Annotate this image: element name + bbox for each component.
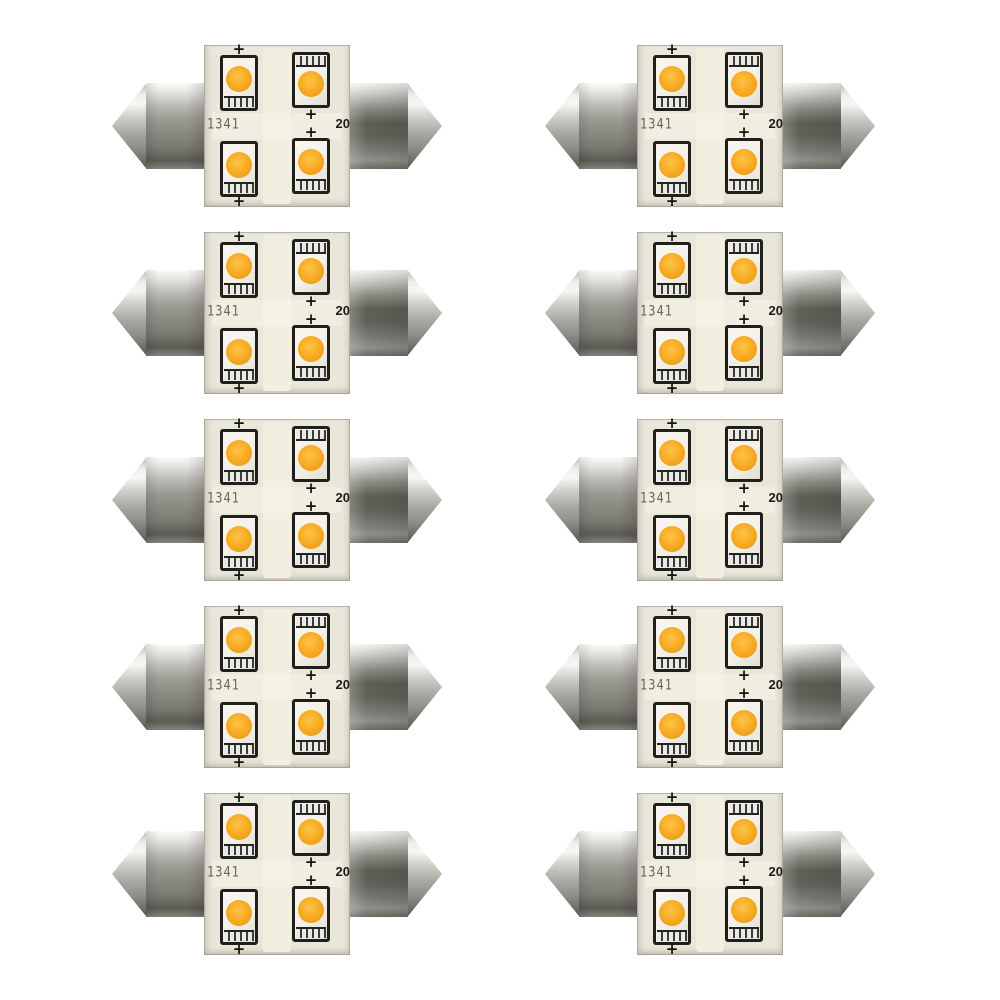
led-circuit-board: + + + +: [204, 45, 350, 207]
led-amber-die: [659, 627, 685, 653]
pcb-label: 20: [769, 864, 783, 879]
pcb-label: 20: [336, 864, 350, 879]
led-solder-contact: [224, 470, 254, 481]
led-chip-bottom-left: +: [220, 328, 258, 384]
led-solder-contact: [657, 96, 687, 107]
cap-cylinder-left: [579, 644, 637, 730]
polarity-plus-mark: +: [292, 668, 330, 683]
cap-cylinder-right: [350, 644, 408, 730]
cap-cone-right: [408, 83, 442, 169]
polarity-plus-mark: +: [292, 107, 330, 122]
pcb-marking: 1341: [640, 490, 673, 506]
led-chip-bottom-right: +: [725, 138, 763, 194]
pcb-marking: 1341: [640, 677, 673, 693]
metal-end-cap-right: [350, 457, 442, 543]
led-solder-contact: [296, 617, 326, 628]
polarity-plus-mark: +: [725, 294, 763, 309]
led-chip-bottom-left: +: [653, 141, 691, 197]
metal-end-cap-right: [783, 270, 875, 356]
led-chip-bottom-left: +: [653, 328, 691, 384]
cap-cone-left: [545, 270, 579, 356]
festoon-bulb: + + + +: [112, 232, 442, 394]
cap-cone-right: [841, 644, 875, 730]
led-solder-contact: [729, 617, 759, 628]
led-package: [653, 242, 691, 298]
pcb-marking: 1341: [640, 116, 673, 132]
pcb-label: 20: [769, 303, 783, 318]
led-amber-die: [731, 149, 757, 175]
led-chip-bottom-right: +: [725, 699, 763, 755]
led-package: [220, 328, 258, 384]
metal-end-cap-left: [112, 457, 204, 543]
polarity-plus-mark: +: [220, 568, 258, 583]
led-solder-contact: [729, 553, 759, 564]
pcb-marking: 1341: [207, 677, 240, 693]
pcb-marking: 1341: [640, 864, 673, 880]
led-amber-die: [731, 258, 757, 284]
pcb-marking: 1341: [207, 864, 240, 880]
led-chip-top-left: +: [653, 242, 691, 298]
led-amber-die: [731, 819, 757, 845]
led-package: [292, 886, 330, 942]
led-solder-contact: [224, 844, 254, 855]
cap-cone-left: [545, 83, 579, 169]
led-amber-die: [226, 339, 252, 365]
led-chip-bottom-right: +: [725, 325, 763, 381]
led-package: [220, 515, 258, 571]
led-chip-bottom-left: +: [653, 702, 691, 758]
metal-end-cap-left: [545, 270, 637, 356]
led-amber-die: [731, 710, 757, 736]
led-solder-contact: [296, 553, 326, 564]
led-amber-die: [731, 336, 757, 362]
led-solder-contact: [296, 179, 326, 190]
led-chip-top-left: +: [220, 55, 258, 111]
led-chip-top-left: +: [220, 242, 258, 298]
led-solder-contact: [296, 366, 326, 377]
led-package: [292, 52, 330, 108]
cap-cone-right: [841, 457, 875, 543]
led-amber-die: [226, 900, 252, 926]
led-solder-contact: [296, 804, 326, 815]
cap-cone-right: [408, 644, 442, 730]
metal-end-cap-left: [545, 831, 637, 917]
led-circuit-board: + + + +: [637, 45, 783, 207]
pcb-marking: 1341: [207, 303, 240, 319]
cap-cylinder-right: [350, 457, 408, 543]
led-solder-contact: [657, 283, 687, 294]
led-amber-die: [731, 445, 757, 471]
metal-end-cap-right: [350, 83, 442, 169]
led-package: [725, 699, 763, 755]
metal-end-cap-right: [783, 644, 875, 730]
cap-cone-left: [112, 83, 146, 169]
led-package: [220, 803, 258, 859]
cap-cylinder-left: [579, 457, 637, 543]
led-amber-die: [659, 814, 685, 840]
metal-end-cap-right: [783, 831, 875, 917]
festoon-bulb: + + + +: [112, 793, 442, 955]
cap-cylinder-left: [146, 644, 204, 730]
led-amber-die: [226, 440, 252, 466]
cap-cylinder-right: [783, 457, 841, 543]
led-amber-die: [659, 526, 685, 552]
pcb-marking: 1341: [207, 490, 240, 506]
led-solder-contact: [296, 430, 326, 441]
polarity-plus-mark: +: [220, 194, 258, 209]
pcb-label: 20: [336, 677, 350, 692]
led-amber-die: [226, 526, 252, 552]
led-amber-die: [298, 149, 324, 175]
cap-cone-right: [841, 83, 875, 169]
led-package: [653, 515, 691, 571]
pcb-label: 20: [336, 116, 350, 131]
led-chip-bottom-right: +: [725, 886, 763, 942]
polarity-plus-mark: +: [653, 194, 691, 209]
led-amber-die: [226, 66, 252, 92]
led-package: [292, 138, 330, 194]
led-amber-die: [298, 819, 324, 845]
polarity-plus-mark: +: [725, 107, 763, 122]
led-amber-die: [731, 897, 757, 923]
led-package: [725, 512, 763, 568]
polarity-plus-mark: +: [725, 668, 763, 683]
led-chip-bottom-right: +: [292, 138, 330, 194]
led-amber-die: [226, 713, 252, 739]
led-solder-contact: [729, 56, 759, 67]
cap-cone-right: [408, 831, 442, 917]
led-circuit-board: + + + +: [204, 606, 350, 768]
led-chip-top-right: +: [725, 239, 763, 295]
led-chip-bottom-right: +: [292, 699, 330, 755]
led-chip-bottom-right: +: [725, 512, 763, 568]
metal-end-cap-right: [350, 831, 442, 917]
cap-cylinder-left: [146, 83, 204, 169]
led-package: [220, 616, 258, 672]
led-chip-bottom-left: +: [220, 702, 258, 758]
led-solder-contact: [729, 243, 759, 254]
metal-end-cap-left: [112, 270, 204, 356]
led-circuit-board: + + + +: [204, 793, 350, 955]
metal-end-cap-left: [545, 457, 637, 543]
led-package: [292, 239, 330, 295]
led-package: [653, 889, 691, 945]
metal-end-cap-left: [112, 83, 204, 169]
led-amber-die: [659, 713, 685, 739]
bulb-grid: + + + +: [112, 45, 875, 955]
polarity-plus-mark: +: [653, 755, 691, 770]
cap-cylinder-right: [783, 83, 841, 169]
led-package: [725, 886, 763, 942]
festoon-bulb: + + + +: [112, 419, 442, 581]
polarity-plus-mark: +: [220, 942, 258, 957]
led-package: [725, 426, 763, 482]
led-package: [292, 699, 330, 755]
metal-end-cap-left: [112, 644, 204, 730]
cap-cone-left: [112, 270, 146, 356]
led-chip-bottom-left: +: [653, 515, 691, 571]
led-amber-die: [298, 258, 324, 284]
cap-cylinder-right: [350, 83, 408, 169]
led-chip-bottom-left: +: [220, 515, 258, 571]
led-solder-contact: [729, 366, 759, 377]
led-chip-bottom-left: +: [220, 141, 258, 197]
led-package: [220, 429, 258, 485]
polarity-plus-mark: +: [725, 855, 763, 870]
cap-cylinder-left: [146, 831, 204, 917]
cap-cylinder-left: [579, 831, 637, 917]
cap-cylinder-left: [146, 270, 204, 356]
led-chip-top-right: +: [292, 800, 330, 856]
cap-cylinder-right: [350, 270, 408, 356]
cap-cylinder-left: [146, 457, 204, 543]
led-chip-bottom-right: +: [292, 325, 330, 381]
festoon-bulb: + + + +: [545, 45, 875, 207]
led-circuit-board: + + + +: [637, 606, 783, 768]
polarity-plus-mark: +: [220, 755, 258, 770]
led-chip-top-right: +: [292, 239, 330, 295]
cap-cone-right: [841, 270, 875, 356]
pcb-marking: 1341: [207, 116, 240, 132]
led-circuit-board: + + + +: [637, 793, 783, 955]
led-solder-contact: [729, 804, 759, 815]
led-package: [725, 613, 763, 669]
led-amber-die: [298, 897, 324, 923]
metal-end-cap-left: [112, 831, 204, 917]
led-solder-contact: [224, 657, 254, 668]
led-solder-contact: [729, 179, 759, 190]
led-solder-contact: [296, 56, 326, 67]
metal-end-cap-right: [783, 457, 875, 543]
cap-cone-left: [112, 831, 146, 917]
led-chip-top-right: +: [725, 613, 763, 669]
cap-cone-left: [112, 457, 146, 543]
led-solder-contact: [729, 927, 759, 938]
led-package: [220, 889, 258, 945]
led-amber-die: [226, 253, 252, 279]
led-package: [292, 512, 330, 568]
led-circuit-board: + + + +: [637, 419, 783, 581]
pcb-label: 20: [769, 677, 783, 692]
polarity-plus-mark: +: [292, 294, 330, 309]
polarity-plus-mark: +: [292, 855, 330, 870]
festoon-bulb: + + + +: [545, 793, 875, 955]
led-solder-contact: [729, 740, 759, 751]
led-chip-top-right: +: [292, 426, 330, 482]
led-package: [653, 616, 691, 672]
led-package: [725, 325, 763, 381]
led-chip-top-left: +: [653, 616, 691, 672]
metal-end-cap-left: [545, 83, 637, 169]
pcb-label: 20: [336, 490, 350, 505]
led-amber-die: [226, 152, 252, 178]
cap-cylinder-right: [350, 831, 408, 917]
festoon-bulb: + + + +: [112, 606, 442, 768]
led-package: [653, 429, 691, 485]
led-chip-bottom-right: +: [292, 886, 330, 942]
led-package: [292, 800, 330, 856]
metal-end-cap-right: [350, 270, 442, 356]
metal-end-cap-right: [783, 83, 875, 169]
led-package: [725, 52, 763, 108]
polarity-plus-mark: +: [725, 481, 763, 496]
led-circuit-board: + + + +: [204, 232, 350, 394]
led-amber-die: [731, 523, 757, 549]
led-circuit-board: + + + +: [637, 232, 783, 394]
polarity-plus-mark: +: [653, 568, 691, 583]
cap-cone-left: [545, 457, 579, 543]
led-solder-contact: [224, 96, 254, 107]
led-package: [292, 426, 330, 482]
led-chip-top-left: +: [220, 616, 258, 672]
cap-cone-left: [545, 644, 579, 730]
led-amber-die: [298, 336, 324, 362]
festoon-bulb: + + + +: [545, 606, 875, 768]
led-chip-top-left: +: [653, 429, 691, 485]
led-package: [725, 138, 763, 194]
led-chip-top-right: +: [725, 52, 763, 108]
festoon-bulb: + + + +: [112, 45, 442, 207]
led-chip-top-left: +: [653, 803, 691, 859]
led-amber-die: [731, 632, 757, 658]
led-amber-die: [731, 71, 757, 97]
pcb-label: 20: [336, 303, 350, 318]
led-amber-die: [226, 627, 252, 653]
led-chip-top-right: +: [292, 52, 330, 108]
pcb-marking: 1341: [640, 303, 673, 319]
led-solder-contact: [296, 243, 326, 254]
led-solder-contact: [296, 927, 326, 938]
led-package: [220, 55, 258, 111]
led-chip-top-right: +: [725, 800, 763, 856]
led-chip-top-left: +: [653, 55, 691, 111]
led-chip-top-left: +: [220, 803, 258, 859]
led-amber-die: [298, 445, 324, 471]
led-package: [653, 141, 691, 197]
cap-cylinder-left: [579, 83, 637, 169]
led-amber-die: [298, 523, 324, 549]
led-solder-contact: [296, 740, 326, 751]
led-amber-die: [298, 710, 324, 736]
cap-cone-left: [545, 831, 579, 917]
led-amber-die: [298, 632, 324, 658]
led-amber-die: [659, 253, 685, 279]
cap-cone-right: [408, 270, 442, 356]
cap-cone-left: [112, 644, 146, 730]
led-chip-bottom-left: +: [653, 889, 691, 945]
led-package: [653, 55, 691, 111]
led-amber-die: [298, 71, 324, 97]
led-amber-die: [659, 440, 685, 466]
led-solder-contact: [729, 430, 759, 441]
led-amber-die: [226, 814, 252, 840]
metal-end-cap-left: [545, 644, 637, 730]
led-package: [725, 800, 763, 856]
led-package: [725, 239, 763, 295]
led-circuit-board: + + + +: [204, 419, 350, 581]
pcb-label: 20: [769, 490, 783, 505]
led-chip-top-right: +: [725, 426, 763, 482]
led-solder-contact: [657, 470, 687, 481]
led-solder-contact: [224, 283, 254, 294]
led-package: [292, 325, 330, 381]
festoon-bulb: + + + +: [545, 419, 875, 581]
led-amber-die: [659, 66, 685, 92]
led-chip-bottom-right: +: [292, 512, 330, 568]
polarity-plus-mark: +: [220, 381, 258, 396]
metal-end-cap-right: [350, 644, 442, 730]
cap-cylinder-right: [783, 644, 841, 730]
led-chip-top-right: +: [292, 613, 330, 669]
polarity-plus-mark: +: [653, 942, 691, 957]
led-package: [220, 141, 258, 197]
led-chip-bottom-left: +: [220, 889, 258, 945]
led-amber-die: [659, 152, 685, 178]
led-chip-top-left: +: [220, 429, 258, 485]
polarity-plus-mark: +: [292, 481, 330, 496]
led-solder-contact: [657, 657, 687, 668]
led-package: [653, 803, 691, 859]
led-package: [653, 702, 691, 758]
led-package: [220, 702, 258, 758]
cap-cone-right: [408, 457, 442, 543]
led-solder-contact: [657, 844, 687, 855]
cap-cylinder-right: [783, 831, 841, 917]
led-amber-die: [659, 900, 685, 926]
led-package: [653, 328, 691, 384]
cap-cone-right: [841, 831, 875, 917]
led-amber-die: [659, 339, 685, 365]
polarity-plus-mark: +: [653, 381, 691, 396]
festoon-bulb: + + + +: [545, 232, 875, 394]
cap-cylinder-left: [579, 270, 637, 356]
led-package: [292, 613, 330, 669]
pcb-label: 20: [769, 116, 783, 131]
cap-cylinder-right: [783, 270, 841, 356]
led-package: [220, 242, 258, 298]
